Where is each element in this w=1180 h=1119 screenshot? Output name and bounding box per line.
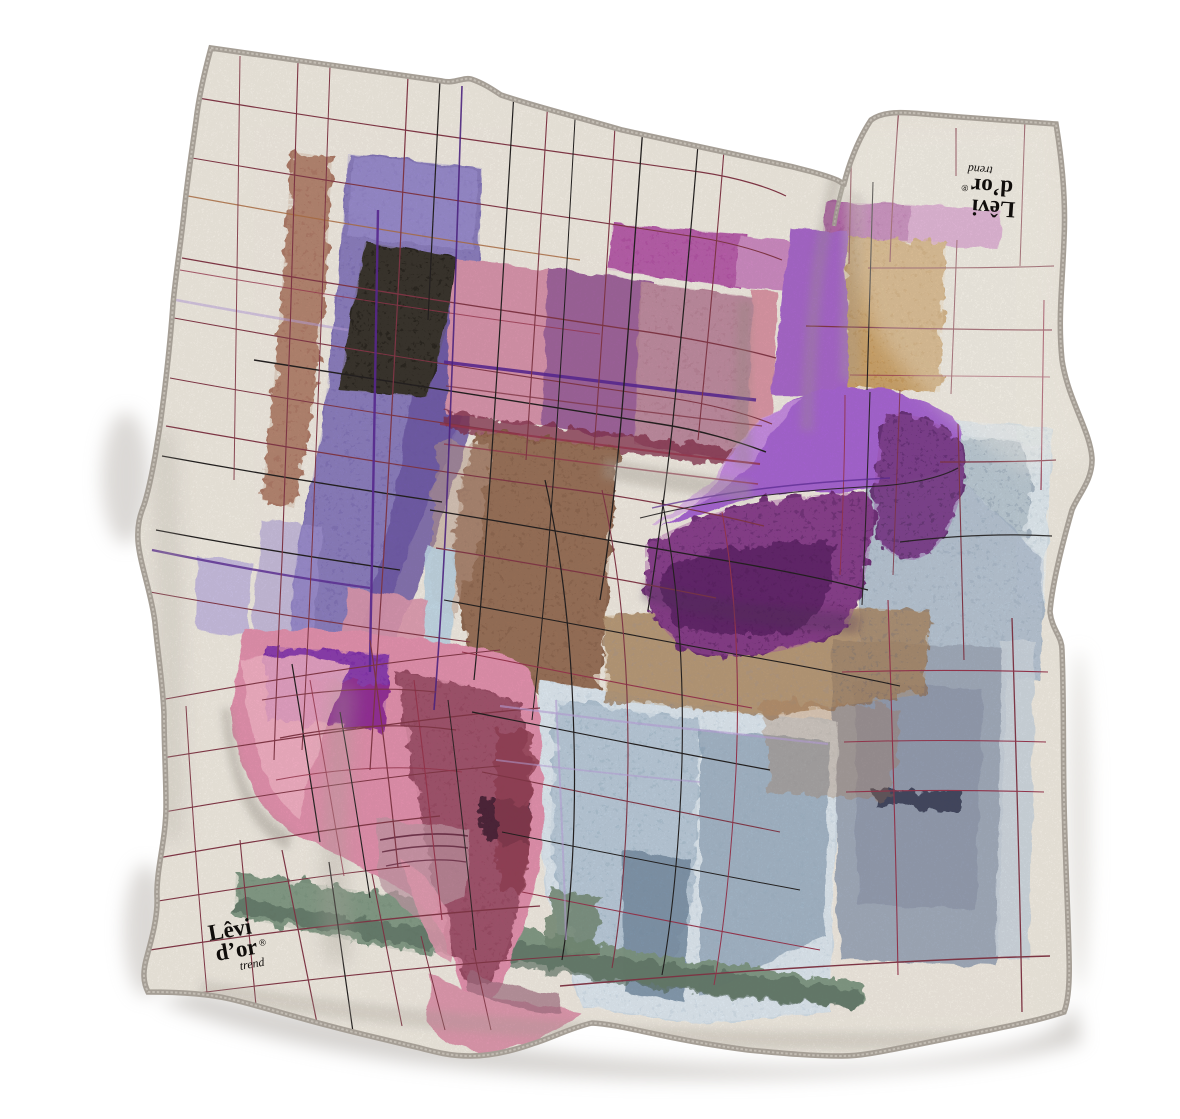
svg-text:trend: trend [966, 162, 993, 178]
svg-text:®: ® [961, 183, 969, 193]
